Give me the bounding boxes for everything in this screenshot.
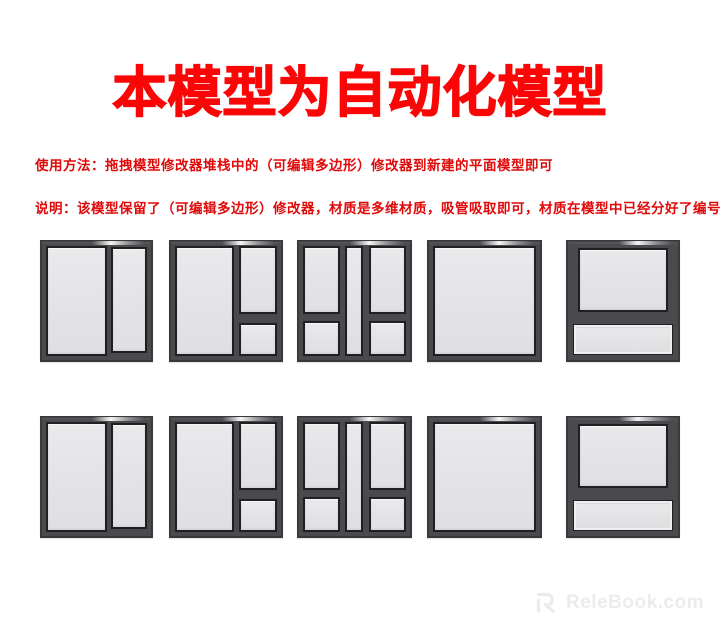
glass-pane [345,422,363,532]
glass-pane [175,246,234,356]
frame-reflection-highlight [619,417,673,421]
glass-pane [369,422,406,490]
window-double-column-center-strip [297,240,412,362]
glass-pane [303,422,340,490]
window-double-column-center-strip [297,416,412,538]
frame-reflection-highlight [350,417,404,421]
glass-pane [303,321,340,356]
watermark: ReleBook.com [534,590,704,616]
frame-reflection-highlight [350,241,404,245]
window-two-pane [40,416,153,538]
glass-pane [433,422,536,532]
frame-reflection-highlight [480,241,534,245]
window-right-column-split [169,240,283,362]
glass-pane [578,248,668,312]
frame-reflection-highlight [619,241,673,245]
watermark-text: ReleBook.com [566,592,704,614]
window-right-column-split [169,416,283,538]
window-two-pane [40,240,153,362]
glass-pane [239,499,277,532]
glass-pane [369,246,406,314]
window-single-pane [427,416,542,538]
glass-pane [46,246,107,356]
frame-reflection-highlight [222,241,276,245]
window-top-sash-bottom-transom [566,416,680,538]
glass-pane [175,422,234,532]
glass-pane [369,321,406,356]
product-sheet: 本模型为自动化模型 使用方法：拖拽模型修改器堆栈中的（可编辑多边形）修改器到新建… [0,0,720,640]
windows-grid [0,0,720,640]
frame-reflection-highlight [92,241,145,245]
glass-pane [578,424,668,488]
window-top-sash-bottom-transom [566,240,680,362]
glass-pane [433,246,536,356]
glass-pane [574,501,672,530]
glass-pane [46,422,107,532]
glass-pane [303,246,340,314]
window-single-pane [427,240,542,362]
frame-reflection-highlight [480,417,534,421]
glass-pane [111,423,147,529]
glass-pane [345,246,363,356]
glass-pane [369,497,406,532]
glass-pane [303,497,340,532]
glass-pane [111,247,147,353]
relebook-logo-icon [534,590,560,616]
glass-pane [239,422,277,490]
glass-pane [239,323,277,356]
glass-pane [574,325,672,354]
frame-reflection-highlight [92,417,145,421]
frame-reflection-highlight [222,417,276,421]
glass-pane [239,246,277,314]
